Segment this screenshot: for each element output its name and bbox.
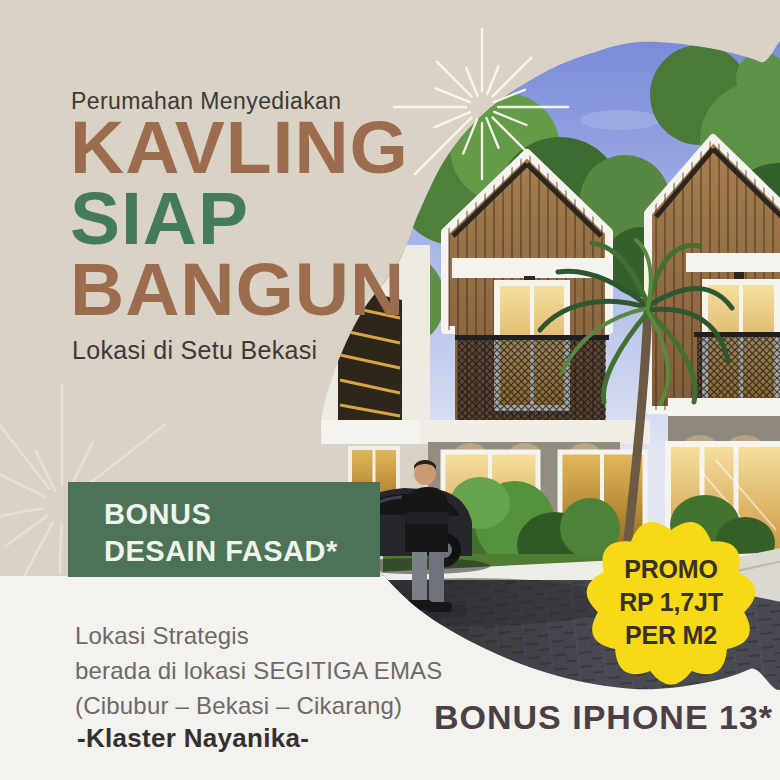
location-line1: Lokasi Strategis: [75, 618, 443, 653]
bonus-banner-line2: DESAIN FASAD*: [104, 533, 380, 570]
flyer-canvas: Perumahan Menyediakan KAVLING SIAP BANGU…: [0, 0, 780, 780]
bonus-banner-line1: BONUS: [104, 496, 380, 533]
fascia-band: [420, 420, 650, 444]
promo-badge-line3: PER M2: [625, 619, 717, 652]
promo-badge: PROMO RP 1,7JT PER M2: [581, 515, 761, 689]
promo-badge-text: PROMO RP 1,7JT PER M2: [581, 515, 761, 689]
cluster-name: -Klaster Nayanika-: [77, 723, 309, 754]
location-line2: berada di lokasi SEGITIGA EMAS: [75, 653, 443, 688]
location-line3: (Cibubur – Bekasi – Cikarang): [75, 688, 443, 723]
title-line-siap: SIAP: [70, 183, 409, 254]
strategic-location-text: Lokasi Strategis berada di lokasi SEGITI…: [75, 618, 443, 723]
bonus-banner: BONUS DESAIN FASAD*: [68, 482, 380, 577]
title-line-bangun: BANGUN: [70, 254, 409, 325]
bonus-iphone-text: BONUS IPHONE 13*: [434, 698, 773, 737]
title-line-kavling: KAVLING: [70, 112, 409, 183]
promo-badge-line2: RP 1,7JT: [619, 586, 723, 619]
location-subtitle: Lokasi di Setu Bekasi: [72, 336, 317, 365]
page-title: KAVLING SIAP BANGUN: [70, 112, 409, 325]
promo-badge-line1: PROMO: [624, 553, 717, 586]
